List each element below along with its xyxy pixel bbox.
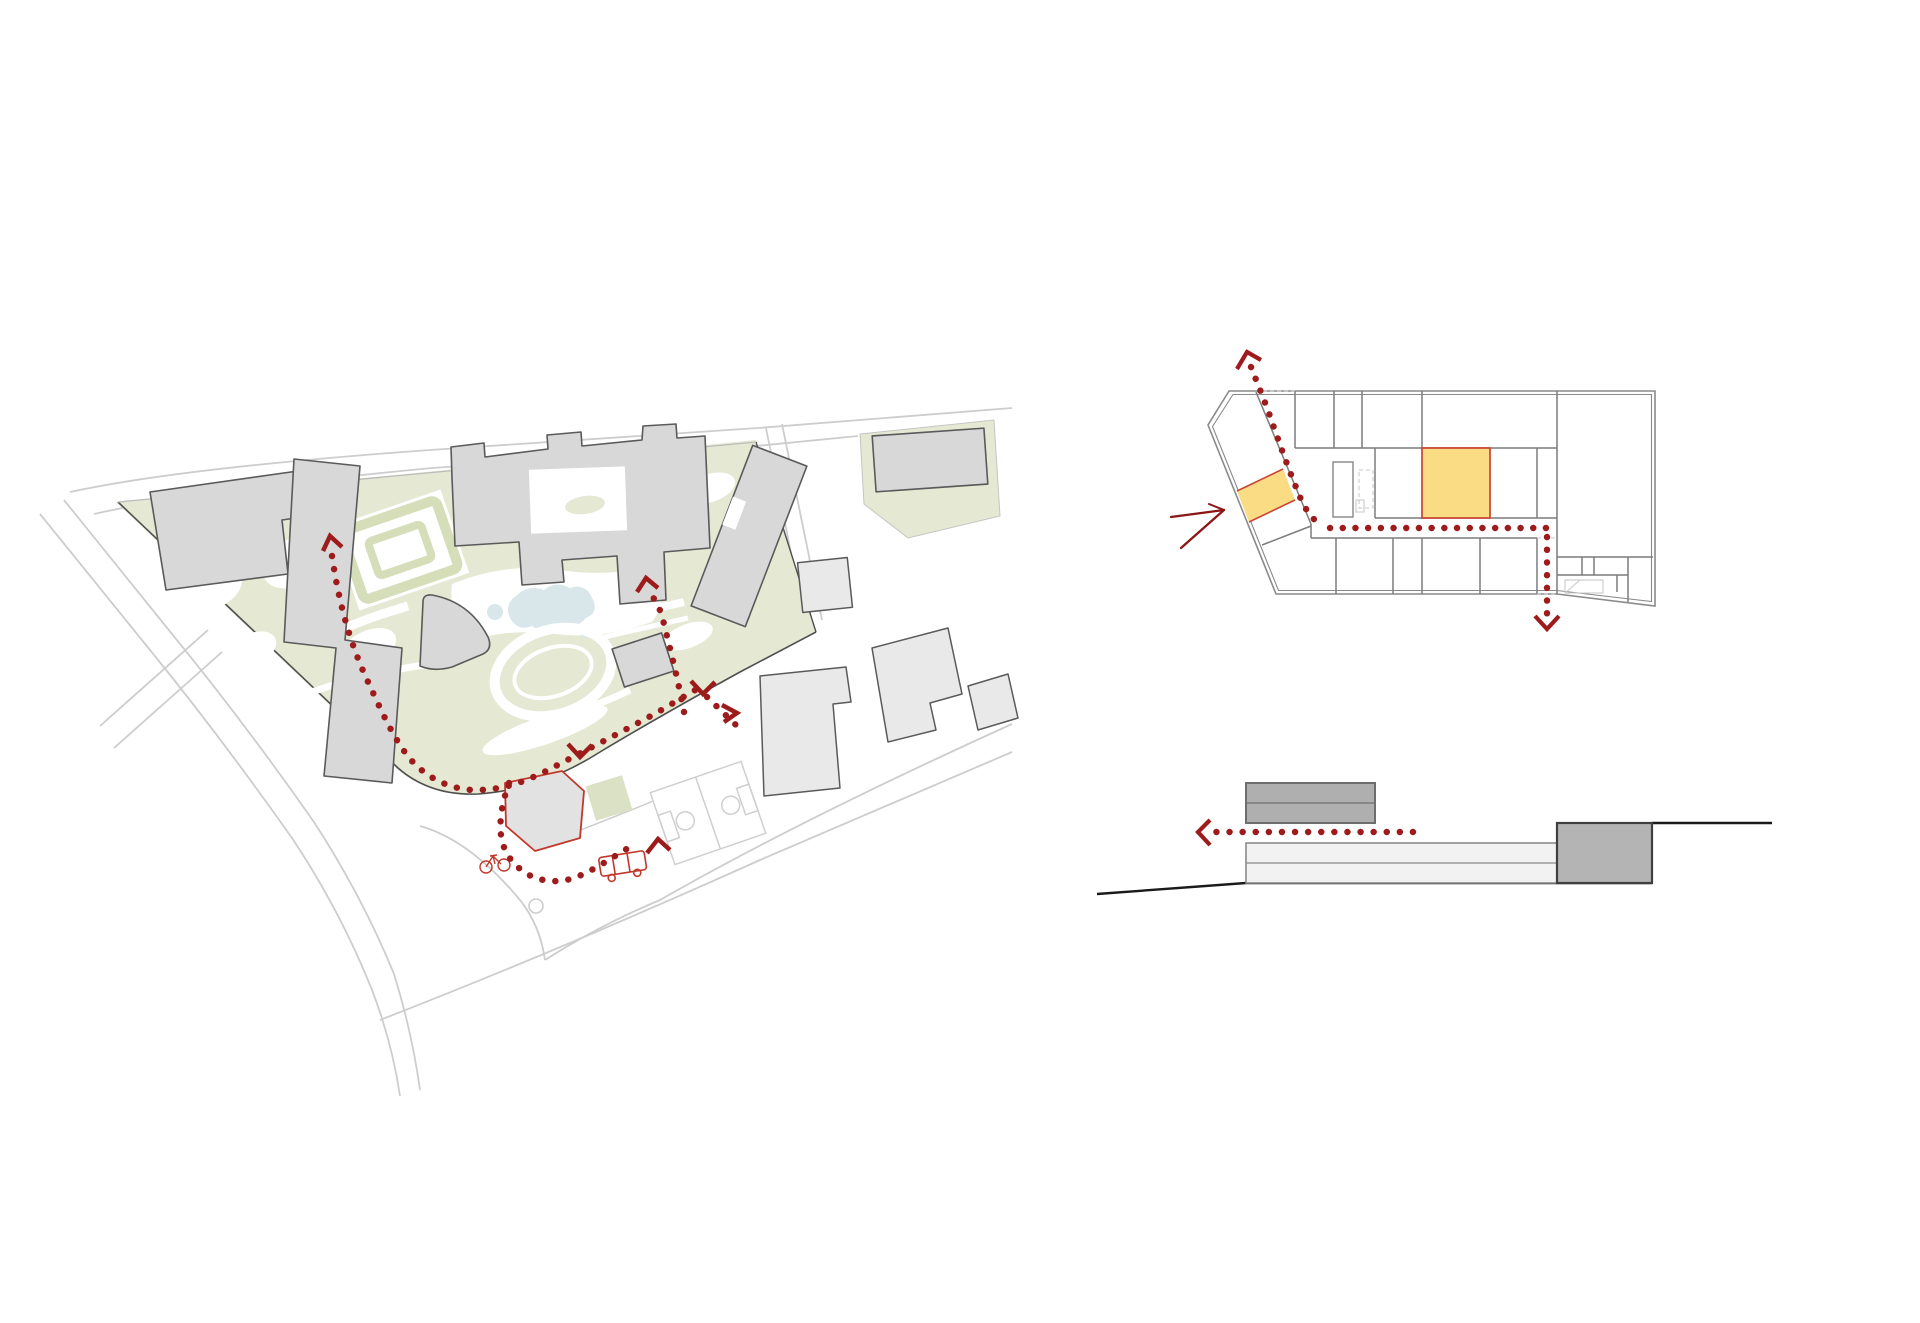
building-east-rotated bbox=[872, 628, 962, 742]
project-building-highlighted bbox=[505, 771, 584, 851]
building-parcel-northeast bbox=[872, 428, 988, 492]
road-bottom-a bbox=[420, 826, 545, 960]
pond-small bbox=[487, 604, 503, 620]
building-southeast-l bbox=[760, 667, 851, 796]
school-courtyard bbox=[529, 466, 627, 533]
section-building-lower bbox=[1246, 843, 1557, 883]
architectural-diagram-canvas bbox=[0, 0, 1920, 1323]
shaft-room bbox=[1333, 462, 1353, 517]
section-building-right bbox=[1557, 823, 1652, 883]
floor-plan bbox=[1171, 352, 1655, 629]
route-direction-chevron-down-exit bbox=[1535, 616, 1559, 629]
building-southeast-small bbox=[798, 558, 853, 613]
site-plan bbox=[40, 408, 1018, 1096]
building-northwest bbox=[150, 471, 303, 590]
lawn-square bbox=[586, 775, 633, 821]
section-diagram bbox=[1097, 783, 1772, 894]
route-direction-chevron-left bbox=[1198, 820, 1210, 845]
sketch-arrow-barb bbox=[1209, 504, 1224, 510]
ground-lower bbox=[1097, 883, 1652, 894]
highlighted-room-hall bbox=[1422, 448, 1490, 518]
presentation-sheet bbox=[0, 0, 1920, 1323]
entrance-sketch-arrow bbox=[1171, 504, 1224, 548]
roundabout bbox=[529, 899, 543, 913]
building-east-partial bbox=[968, 674, 1018, 730]
section-building-upper bbox=[1246, 783, 1375, 823]
bus-icon bbox=[598, 851, 647, 883]
